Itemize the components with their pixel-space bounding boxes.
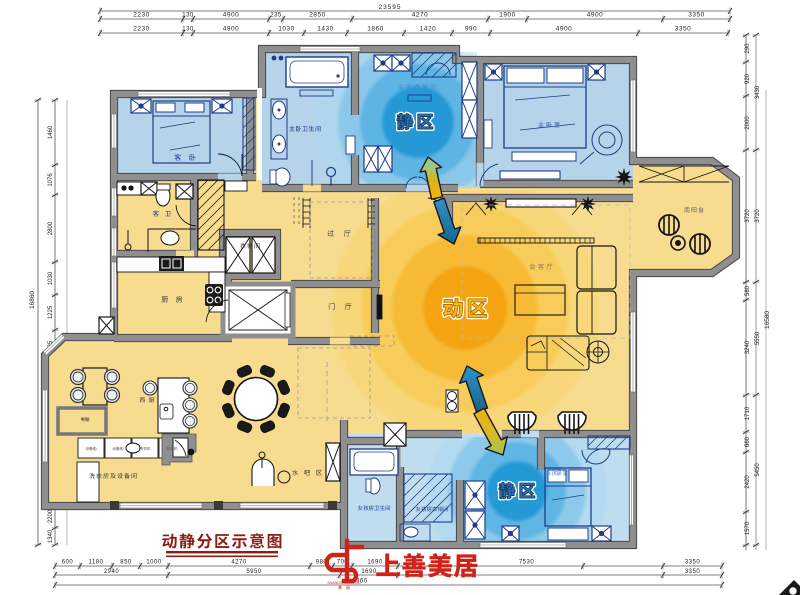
svg-text:2940: 2940 — [104, 569, 120, 575]
svg-text:4900: 4900 — [587, 12, 603, 19]
svg-text:1000: 1000 — [146, 560, 162, 566]
svg-text:4900: 4900 — [223, 26, 239, 33]
svg-text:5450: 5450 — [755, 463, 761, 477]
svg-text:2850: 2850 — [309, 12, 325, 19]
svg-text:4900: 4900 — [556, 26, 572, 33]
svg-text:130: 130 — [182, 27, 194, 33]
svg-text:3240: 3240 — [745, 340, 751, 354]
svg-text:920: 920 — [745, 73, 751, 84]
svg-text:1030: 1030 — [278, 26, 294, 33]
svg-text:3430: 3430 — [755, 85, 761, 99]
svg-text:3350: 3350 — [685, 569, 701, 575]
svg-text:1420: 1420 — [420, 26, 436, 33]
svg-text:5550: 5550 — [755, 331, 761, 345]
svg-text:1570: 1570 — [745, 521, 751, 535]
svg-text:2200: 2200 — [48, 509, 54, 523]
svg-text:3350: 3350 — [685, 560, 701, 566]
svg-text:2800: 2800 — [48, 221, 54, 235]
svg-text:1340: 1340 — [48, 529, 54, 543]
svg-text:1900: 1900 — [499, 12, 515, 19]
svg-text:990: 990 — [465, 26, 477, 33]
svg-text:4900: 4900 — [223, 12, 239, 19]
svg-text:1690: 1690 — [367, 560, 383, 566]
svg-text:850: 850 — [120, 560, 132, 566]
svg-text:3720: 3720 — [745, 209, 751, 223]
svg-text:3350: 3350 — [675, 26, 691, 33]
svg-text:2000: 2000 — [745, 116, 751, 130]
svg-text:1860: 1860 — [367, 26, 383, 33]
svg-text:600: 600 — [62, 560, 74, 566]
svg-text:1180: 1180 — [89, 560, 104, 566]
svg-text:1460: 1460 — [48, 125, 54, 139]
svg-text:23595: 23595 — [378, 4, 401, 11]
svg-text:130: 130 — [182, 13, 194, 19]
svg-text:5950: 5950 — [246, 569, 262, 575]
svg-text:660: 660 — [745, 436, 751, 447]
svg-text:16580: 16580 — [764, 311, 771, 329]
svg-text:1710: 1710 — [745, 406, 751, 420]
svg-text:1430: 1430 — [317, 26, 333, 33]
svg-text:290: 290 — [745, 43, 751, 54]
svg-text:2230: 2230 — [133, 12, 149, 19]
svg-text:3720: 3720 — [755, 209, 761, 223]
svg-text:4270: 4270 — [231, 560, 247, 566]
svg-text:16860: 16860 — [29, 291, 36, 309]
svg-text:4270: 4270 — [412, 12, 428, 19]
svg-text:235: 235 — [270, 13, 282, 19]
svg-text:1030: 1030 — [48, 271, 54, 285]
svg-text:1690: 1690 — [361, 569, 377, 575]
svg-text:2230: 2230 — [133, 26, 149, 33]
svg-text:580: 580 — [745, 285, 751, 296]
svg-text:2420: 2420 — [745, 475, 751, 489]
svg-text:SHANGSHANMEIJU: SHANGSHANMEIJU — [327, 581, 361, 585]
svg-text:7530: 7530 — [519, 560, 535, 566]
svg-text:1225: 1225 — [48, 305, 54, 319]
svg-text:1076: 1076 — [48, 173, 54, 187]
svg-text:3350: 3350 — [688, 12, 704, 19]
